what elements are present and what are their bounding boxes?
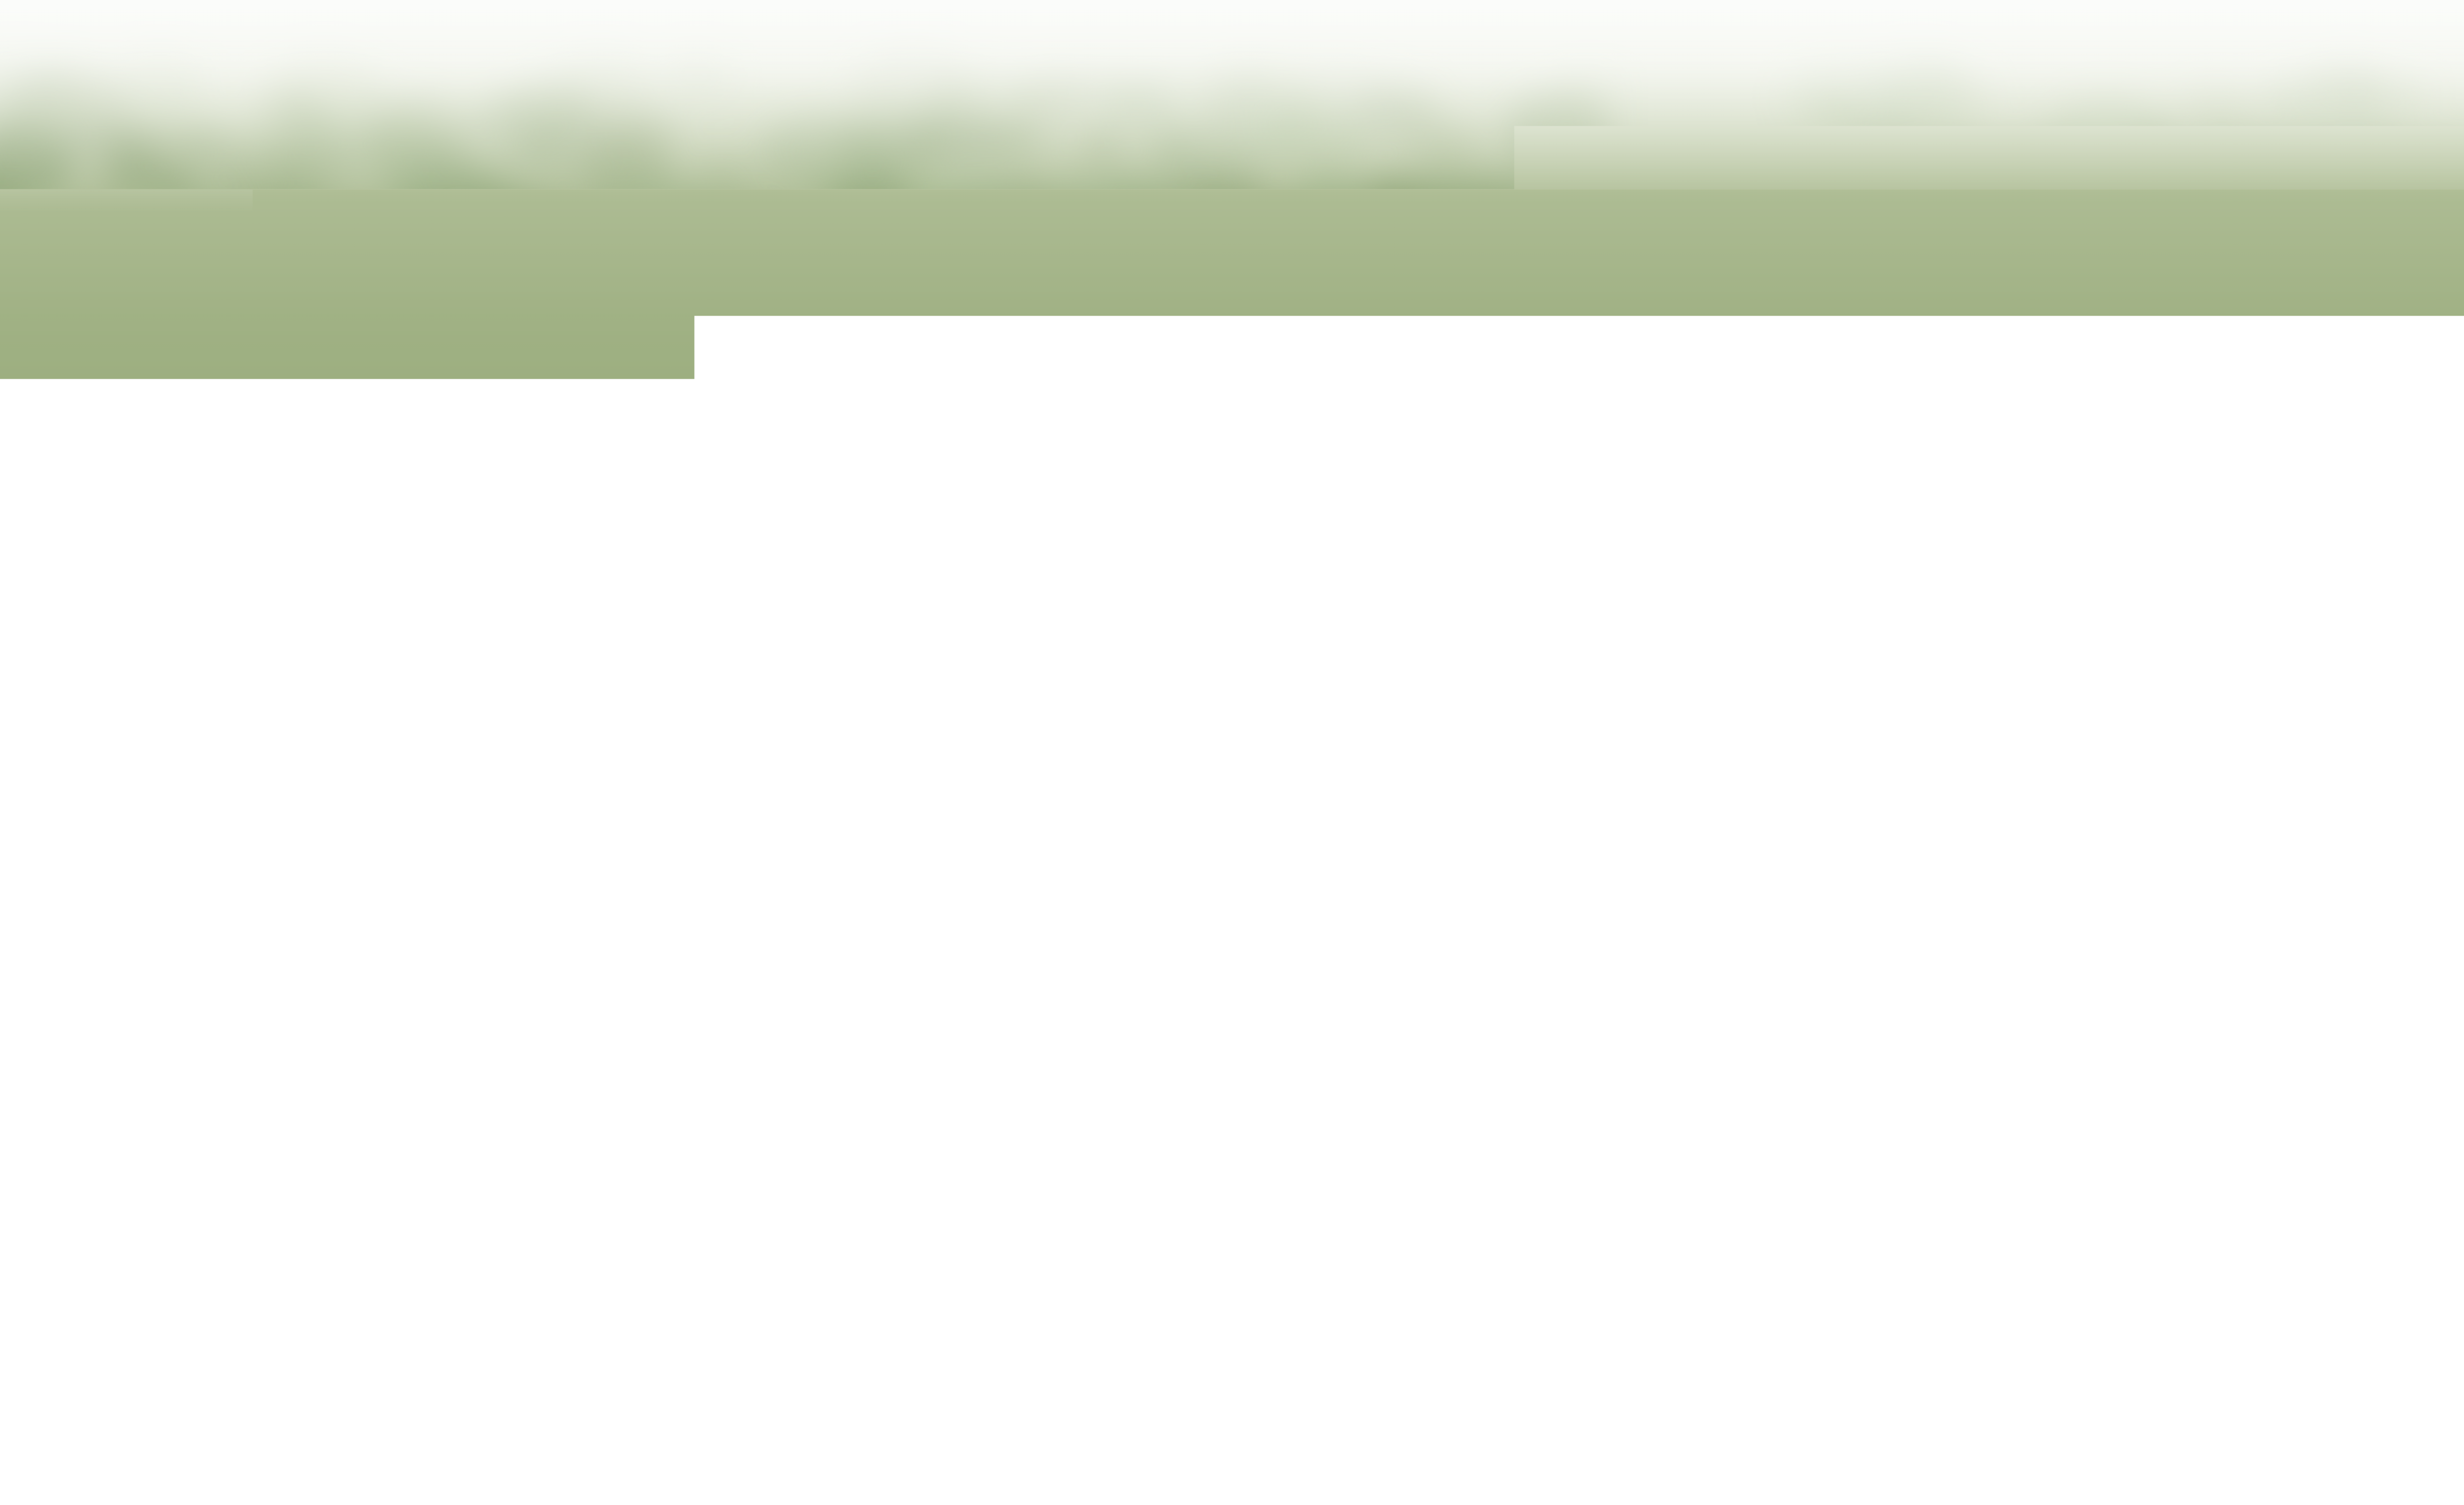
svg-text:Дом: Дом [391,388,446,420]
svg-text:Дом: Дом [1768,504,1825,537]
svg-text:6: 6 [1780,441,1814,507]
svg-text:Дом: Дом [2174,1018,2226,1048]
svg-text:Дом: Дом [80,472,132,502]
svg-text:5: 5 [1271,362,1301,421]
svg-text:Дом: Дом [229,415,280,445]
svg-text:Дом: Дом [548,317,602,348]
svg-text:Дом: Дом [2217,895,2267,924]
svg-text:Дом: Дом [605,639,655,668]
svg-text:Дом: Дом [1504,846,1557,877]
svg-text:Дом: Дом [993,368,1046,399]
svg-text:3: 3 [798,292,827,349]
svg-text:Дом: Дом [2226,767,2276,797]
svg-text:Дом: Дом [307,573,359,603]
svg-text:11Б: 11Б [1516,655,1616,717]
svg-text:7А: 7А [381,326,456,391]
svg-text:8Б: 8Б [482,454,551,514]
svg-text:8А: 8А [628,365,696,424]
svg-text:Дом: Дом [349,285,402,317]
svg-text:12А: 12А [2202,710,2300,770]
svg-text:12Б: 12Б [2193,837,2291,897]
svg-text:Дом: Дом [956,750,1010,781]
svg-text:7Б: 7Б [220,357,289,418]
svg-text:Дом: Дом [1213,554,1267,585]
svg-text:4: 4 [1004,308,1035,371]
svg-text:9Б: 9Б [596,584,663,642]
svg-text:Дом: Дом [1539,714,1593,745]
svg-text:7В: 7В [72,414,142,475]
svg-text:Дом: Дом [789,346,838,374]
svg-text:Дом: Дом [1096,644,1150,675]
svg-text:Дом: Дом [491,512,542,541]
svg-text:10В: 10В [932,691,1034,753]
svg-text:1: 1 [360,225,392,289]
svg-text:10Б: 10Б [1072,585,1175,648]
svg-text:11А: 11А [1675,614,1774,676]
svg-text:2: 2 [559,257,590,321]
svg-text:Дом: Дом [637,421,687,450]
svg-text:10А: 10А [1188,494,1292,557]
svg-text:Дом: Дом [759,579,809,608]
svg-text:Перспектива с птичего полета: Перспектива с птичего полета [167,1393,753,1439]
svg-text:Дом: Дом [1698,673,1751,704]
svg-text:12В: 12В [2150,960,2250,1021]
svg-text:8В: 8В [298,515,368,577]
svg-text:Дом: Дом [1261,419,1311,448]
svg-text:11В: 11В [1481,788,1580,850]
svg-text:9А: 9А [750,522,818,582]
